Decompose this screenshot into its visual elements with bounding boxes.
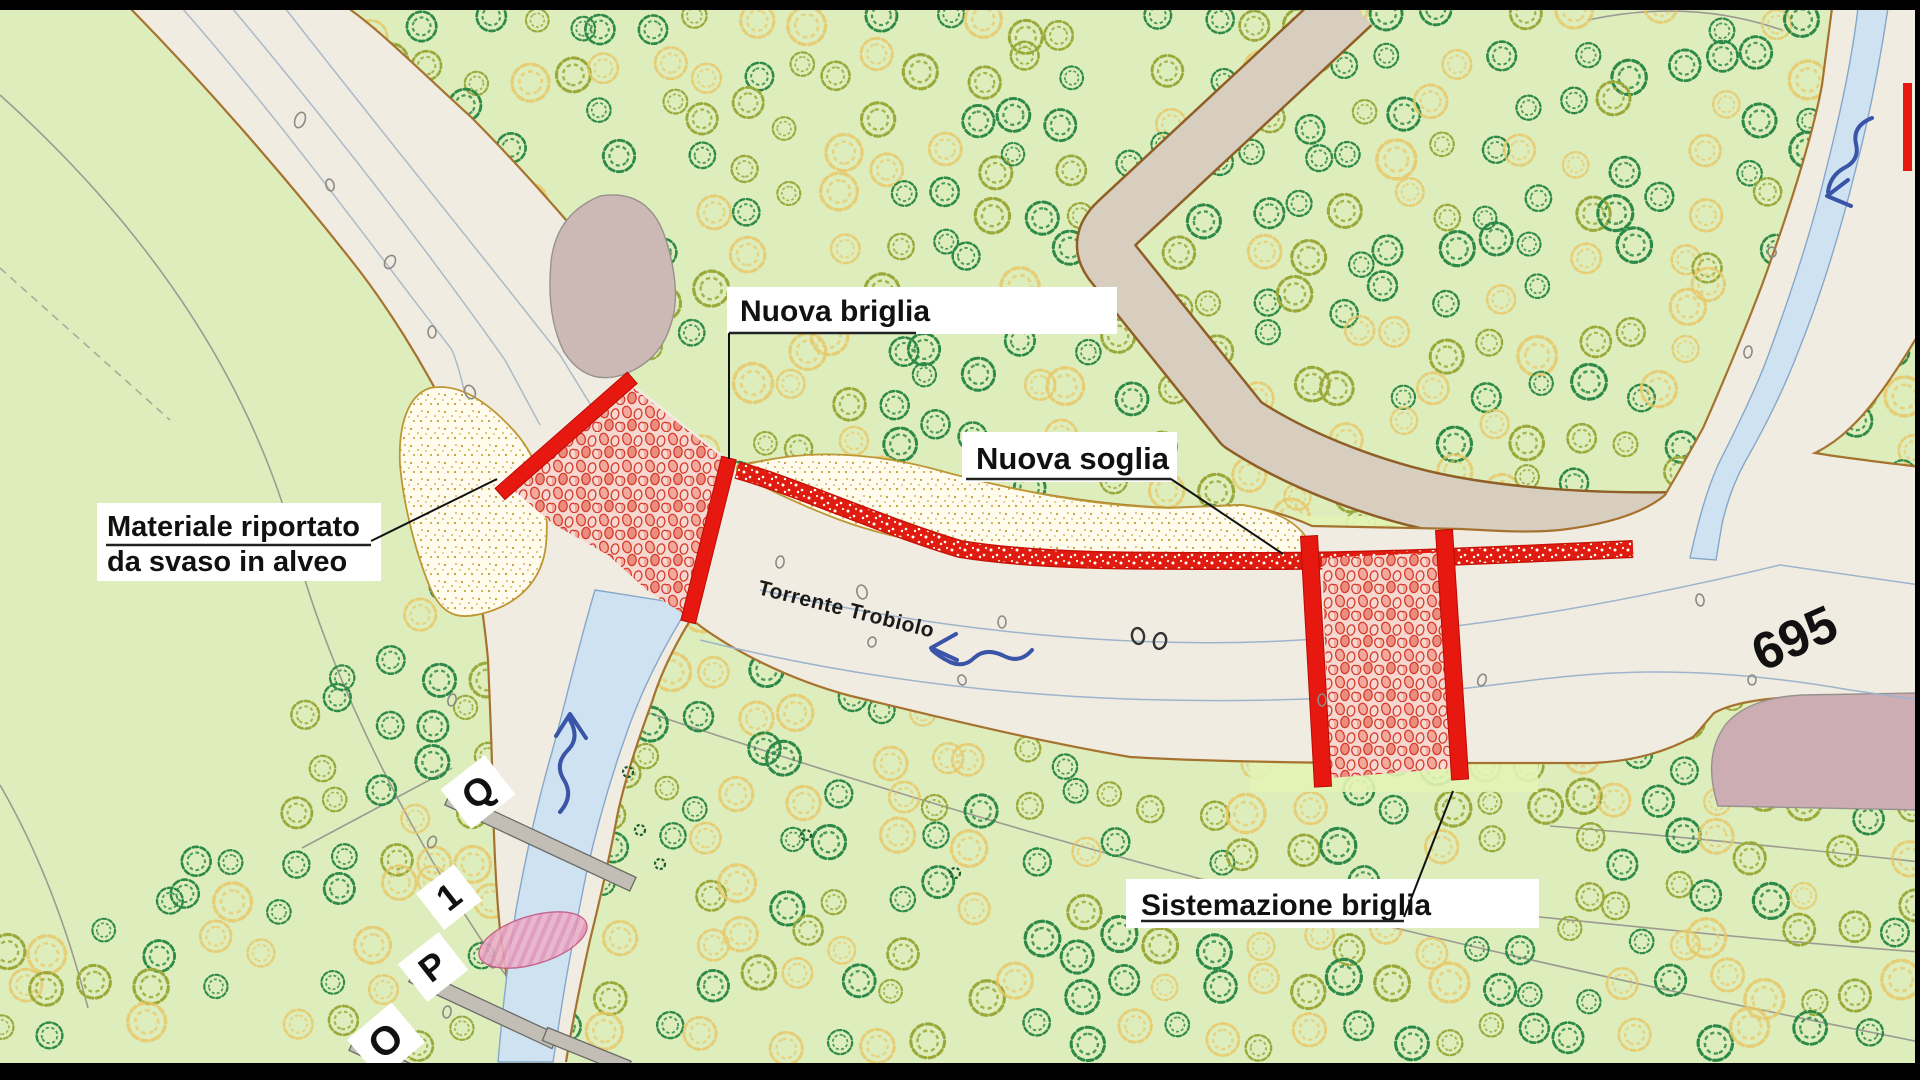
letterbox-bottom xyxy=(0,1063,1920,1080)
plan-map: Torrente Trobiolo 695 Q 1 P O Nuova brig… xyxy=(0,0,1920,1080)
red-edge-mark xyxy=(1903,83,1912,171)
rock-outcrop-left xyxy=(550,195,676,378)
sistemazione-cobble-area xyxy=(1322,552,1456,778)
letterbox-right xyxy=(1915,0,1920,1080)
svg-text:Nuova soglia: Nuova soglia xyxy=(976,441,1170,476)
sistemazione-briglia-structure xyxy=(1301,529,1469,787)
svg-text:da svaso in alveo: da svaso in alveo xyxy=(107,546,347,578)
svg-text:Materiale riportato: Materiale riportato xyxy=(107,511,360,543)
map-canvas: Torrente Trobiolo 695 Q 1 P O Nuova brig… xyxy=(0,0,1920,1080)
scree-area-bottom-right xyxy=(1712,693,1920,810)
letterbox-top xyxy=(0,0,1920,10)
svg-text:Nuova briglia: Nuova briglia xyxy=(740,295,930,328)
svg-text:Sistemazione briglia: Sistemazione briglia xyxy=(1141,889,1431,922)
